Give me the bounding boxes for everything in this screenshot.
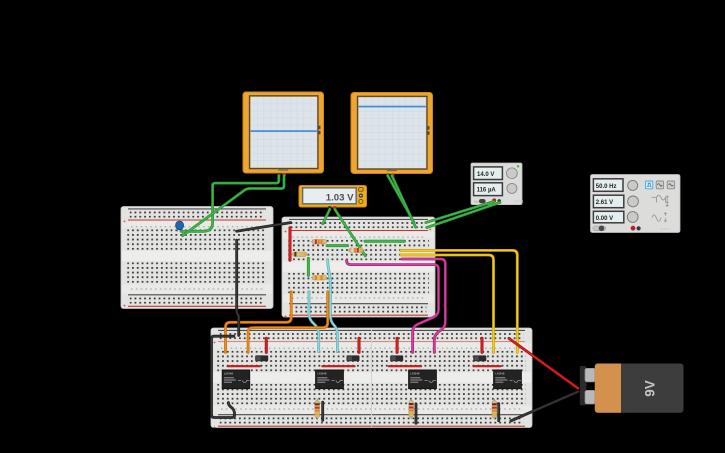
svg-text:2.61 V: 2.61 V (596, 200, 613, 206)
svg-text:+: + (213, 425, 216, 431)
svg-text:0.00 V: 0.00 V (596, 216, 613, 222)
svg-text:50.0 Hz: 50.0 Hz (596, 184, 617, 190)
svg-text:+: + (123, 304, 126, 310)
svg-text:⎓⎓ ∿: ⎓⎓ ∿ (660, 226, 671, 231)
svg-text:1.03 V: 1.03 V (326, 193, 354, 204)
svg-text:LM348: LM348 (224, 372, 234, 376)
svg-text:116 µA: 116 µA (477, 187, 497, 193)
svg-text:+: + (123, 219, 126, 225)
svg-text:+: + (213, 340, 216, 346)
svg-text:LM348: LM348 (410, 372, 420, 376)
svg-text:LM348: LM348 (317, 372, 327, 376)
svg-text:+: + (284, 229, 287, 235)
svg-text:+: + (284, 314, 287, 320)
svg-text:LM348: LM348 (495, 372, 505, 376)
svg-text:ON: ON (474, 200, 479, 204)
svg-text:14.0 V: 14.0 V (477, 172, 494, 178)
svg-text:9V: 9V (643, 380, 658, 397)
svg-text:OUT 1: OUT 1 (514, 199, 524, 203)
